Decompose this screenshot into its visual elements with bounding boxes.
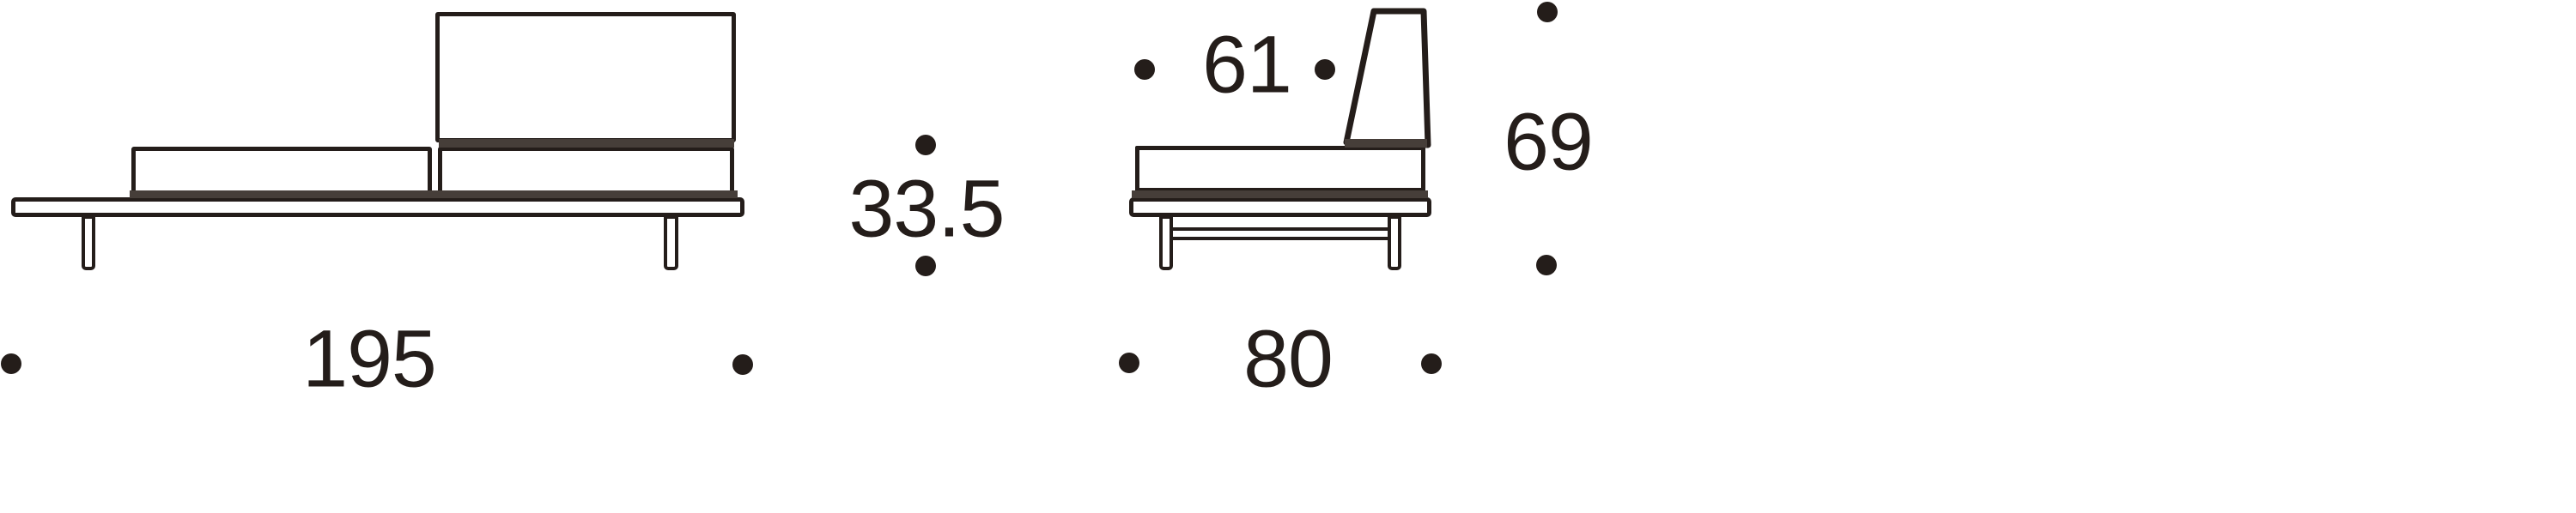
dimension-dot-height-bottom xyxy=(1536,255,1557,275)
dimension-dot-backrest-left xyxy=(1134,59,1155,80)
dimension-label-overall-width: 195 xyxy=(302,319,436,401)
dimension-dot-depth-right xyxy=(1421,353,1442,374)
side-seat-cushion-left xyxy=(131,147,432,195)
dimension-dot-seat-height-top xyxy=(915,135,936,155)
dimension-dot-width-right xyxy=(732,354,753,375)
dimension-label-seat-height: 33.5 xyxy=(849,169,1005,250)
dimension-dot-seat-height-bottom xyxy=(915,256,936,276)
side-seat-cushion-right xyxy=(438,147,734,195)
end-seat-cushion xyxy=(1135,146,1425,192)
dimension-label-overall-depth: 80 xyxy=(1243,319,1333,401)
dimension-label-backrest-depth: 61 xyxy=(1202,25,1291,106)
end-leg-stretcher xyxy=(1166,227,1396,240)
side-leg-right xyxy=(664,215,678,270)
end-leg-right xyxy=(1388,215,1401,270)
side-seat-shadow xyxy=(130,190,738,198)
dimension-dot-width-left xyxy=(1,353,21,374)
dimension-label-overall-height: 69 xyxy=(1504,102,1593,184)
dimension-dot-height-top xyxy=(1537,2,1558,22)
end-seat-shadow xyxy=(1132,190,1428,198)
side-backrest xyxy=(435,12,736,142)
dimension-dot-backrest-right xyxy=(1315,59,1335,80)
end-leg-left xyxy=(1159,215,1173,270)
dimension-dot-depth-left xyxy=(1119,353,1139,373)
dimension-diagram: 195 33.5 61 69 80 xyxy=(0,0,2576,513)
end-backrest xyxy=(1340,8,1438,154)
side-backrest-shadow xyxy=(439,139,734,148)
side-leg-left xyxy=(82,215,95,270)
end-platform xyxy=(1129,197,1431,217)
side-platform xyxy=(11,197,744,217)
end-backrest-shadow xyxy=(1345,139,1427,148)
